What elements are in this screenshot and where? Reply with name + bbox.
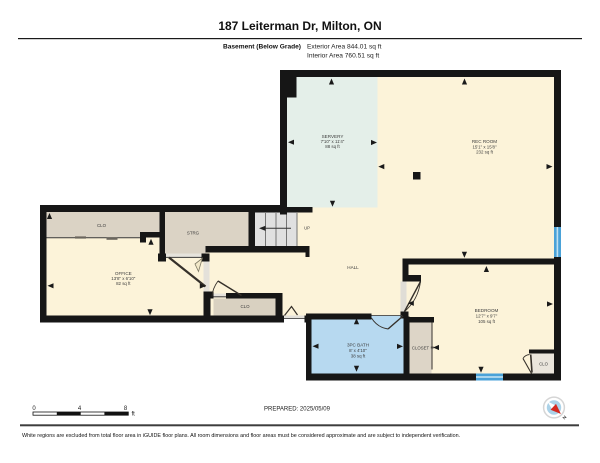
svg-text:PREPARED: 2025/05/09: PREPARED: 2025/05/09 — [264, 407, 331, 413]
svg-text:187 Leiterman Dr, Milton, ON: 187 Leiterman Dr, Milton, ON — [218, 19, 381, 33]
svg-text:CLO: CLO — [97, 223, 107, 228]
svg-text:CLOSET: CLOSET — [412, 346, 430, 351]
svg-text:STRG: STRG — [187, 231, 200, 236]
svg-text:105 sq ft: 105 sq ft — [478, 319, 496, 324]
svg-text:BEDROOM: BEDROOM — [475, 308, 499, 313]
svg-text:REC ROOM: REC ROOM — [472, 139, 497, 144]
svg-text:3PC BATH: 3PC BATH — [347, 343, 369, 348]
svg-text:White regions are excluded fro: White regions are excluded from total fl… — [22, 433, 460, 439]
svg-text:232 sq ft: 232 sq ft — [476, 149, 494, 154]
svg-text:HALL: HALL — [347, 265, 359, 270]
svg-text:Interior Area 760.51 sq ft: Interior Area 760.51 sq ft — [307, 53, 379, 60]
svg-text:12'7" x 9'7": 12'7" x 9'7" — [476, 314, 498, 319]
svg-text:UP: UP — [304, 225, 310, 230]
svg-text:82 sq ft: 82 sq ft — [116, 281, 131, 286]
svg-text:CLO: CLO — [539, 362, 548, 367]
svg-text:CLO: CLO — [240, 304, 250, 309]
svg-text:38 sq ft: 38 sq ft — [351, 353, 366, 358]
svg-text:ft: ft — [132, 411, 136, 417]
svg-text:Basement (Below Grade): Basement (Below Grade) — [223, 44, 301, 51]
svg-text:88 sq ft: 88 sq ft — [325, 144, 340, 149]
svg-text:Exterior Area 844.01 sq ft: Exterior Area 844.01 sq ft — [307, 44, 382, 51]
svg-text:8' x 4'10": 8' x 4'10" — [349, 348, 367, 353]
